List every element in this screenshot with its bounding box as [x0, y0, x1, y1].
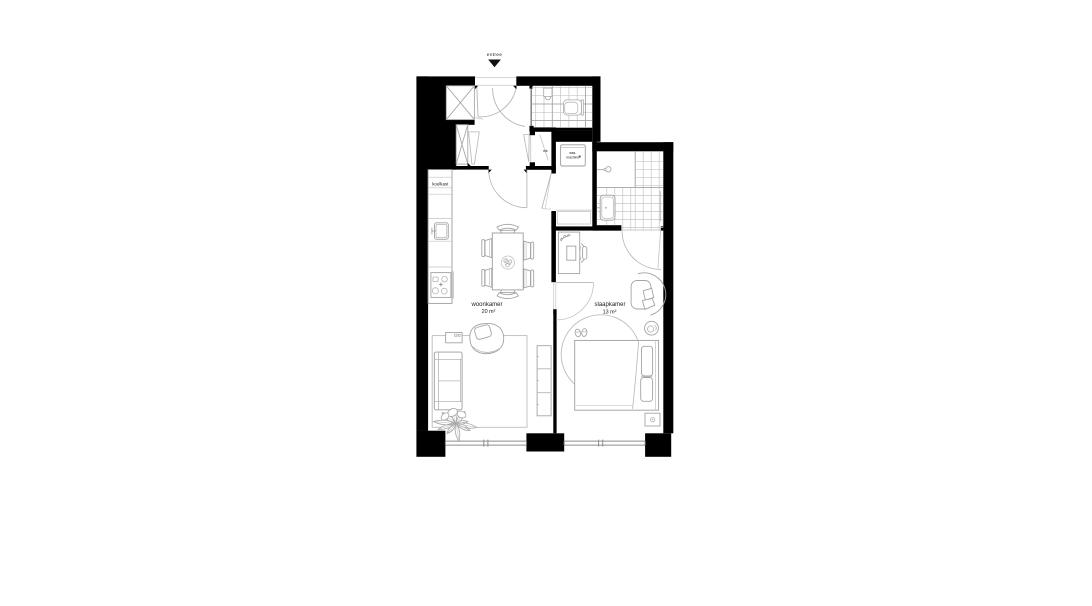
svg-text:mk: mk — [543, 149, 548, 153]
svg-text:was-: was- — [569, 151, 576, 155]
svg-text:koelkast: koelkast — [432, 182, 449, 187]
svg-text:20 m²: 20 m² — [482, 309, 496, 315]
svg-text:entree: entree — [487, 52, 502, 58]
svg-text:woonkamer: woonkamer — [470, 302, 502, 308]
svg-text:slaapkamer: slaapkamer — [594, 302, 625, 308]
svg-text:machine: machine — [566, 156, 579, 160]
